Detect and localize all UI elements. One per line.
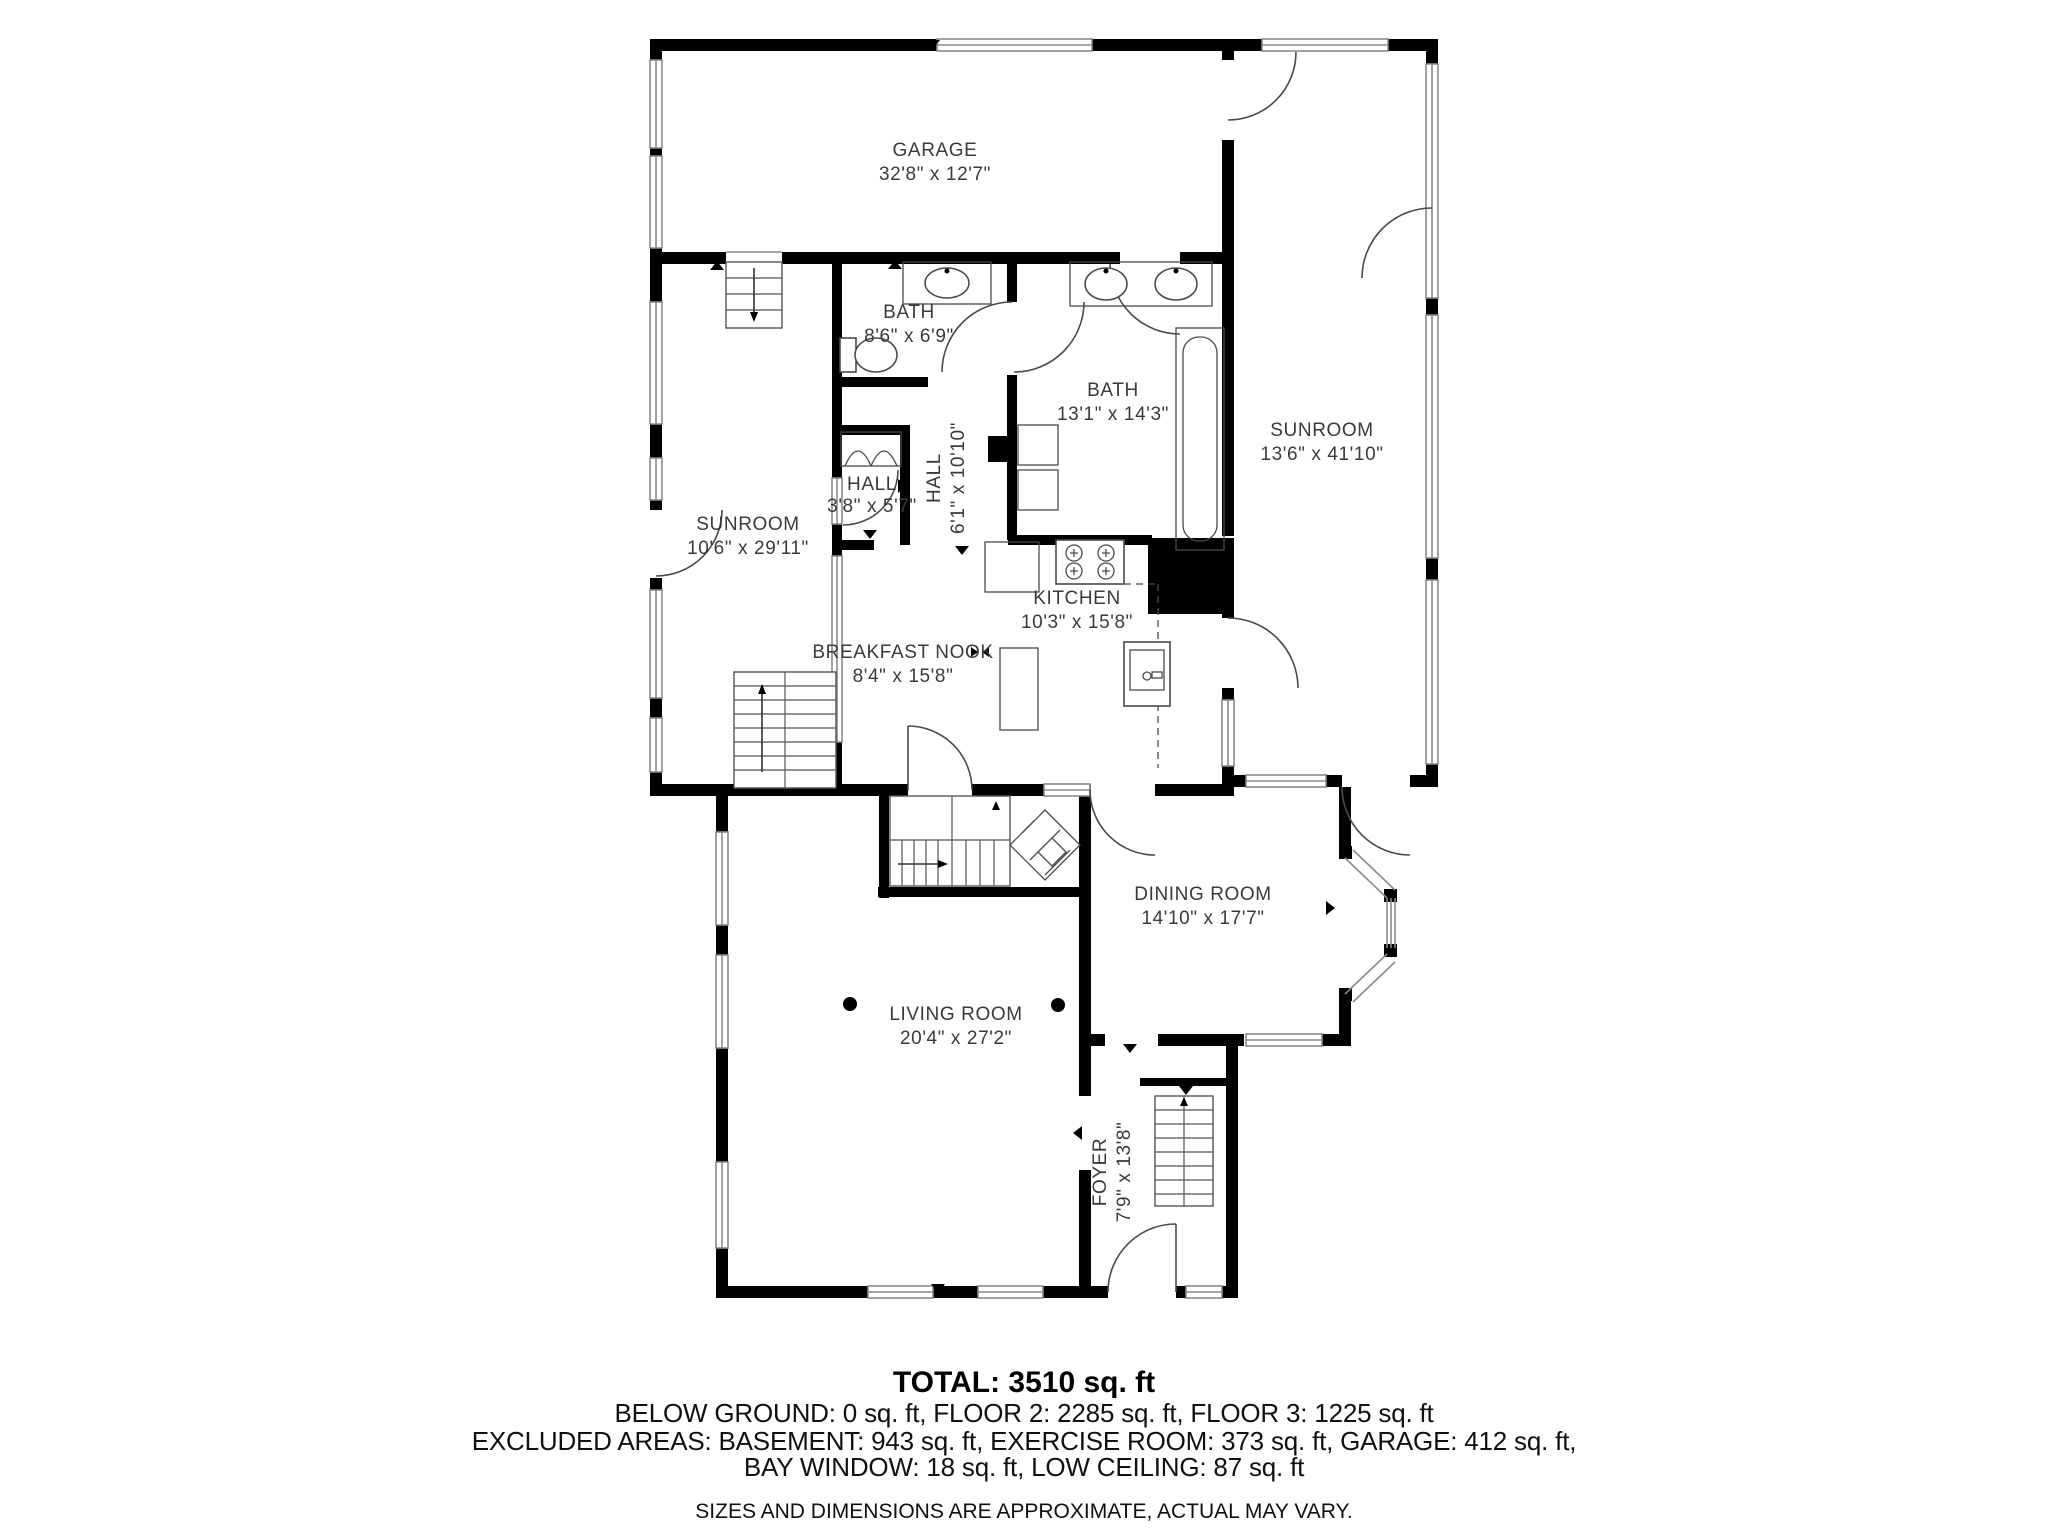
room-label-dining-room-name: DINING ROOM bbox=[1134, 884, 1272, 905]
direction-markers bbox=[710, 40, 1335, 1293]
room-label-bath-small-dims: 8'6" x 6'9" bbox=[864, 326, 954, 347]
room-label-breakfast-nook-name: BREAKFAST NOOK bbox=[812, 642, 993, 663]
stairs-garage bbox=[726, 262, 782, 328]
stairs-foyer bbox=[1155, 1096, 1213, 1206]
summary-disclaimer: SIZES AND DIMENSIONS ARE APPROXIMATE, AC… bbox=[695, 1500, 1352, 1523]
door-arc-sunroom-east bbox=[1362, 208, 1432, 278]
door-arc-front-entry bbox=[1108, 1224, 1176, 1292]
room-label-living-room-dims: 20'4" x 27'2" bbox=[900, 1028, 1012, 1049]
room-label-hall-long-dims: 6'1" x 10'10" bbox=[948, 422, 969, 534]
door-arc-breakfast-nook bbox=[908, 726, 972, 790]
door-arc-bath-large bbox=[1014, 302, 1084, 372]
column-dot bbox=[1051, 998, 1065, 1012]
room-label-hall-small-name: HALL bbox=[847, 474, 897, 495]
summary-excluded2: BAY WINDOW: 18 sq. ft, LOW CEILING: 87 s… bbox=[744, 1452, 1305, 1482]
stairs-sunroom-left bbox=[734, 672, 836, 788]
column-dot bbox=[843, 997, 857, 1011]
floor-plan-drawing: GARAGE 32'8" x 12'7" BATH 8'6" x 6'9" BA… bbox=[0, 0, 2048, 1536]
room-label-dining-room-dims: 14'10" x 17'7" bbox=[1141, 908, 1264, 929]
stairs-center bbox=[890, 796, 1010, 886]
stove-icon bbox=[1056, 540, 1124, 584]
kitchen-island-icon bbox=[1000, 648, 1038, 730]
room-label-bath-large-name: BATH bbox=[1087, 380, 1139, 401]
room-label-hall-small-dims: 3'8" x 5'7" bbox=[827, 496, 917, 517]
door-arc-dining-sunroom bbox=[1342, 787, 1410, 855]
windows bbox=[650, 39, 1438, 1298]
summary-block: TOTAL: 3510 sq. ft BELOW GROUND: 0 sq. f… bbox=[472, 1366, 1577, 1523]
sink-icon bbox=[903, 262, 991, 304]
room-label-sunroom-left-name: SUNROOM bbox=[696, 514, 799, 535]
double-sink-icon bbox=[1070, 262, 1212, 306]
kitchen-sink-icon bbox=[1124, 642, 1170, 706]
room-label-sunroom-left-dims: 10'6" x 29'11" bbox=[687, 538, 809, 559]
summary-floors: BELOW GROUND: 0 sq. ft, FLOOR 2: 2285 sq… bbox=[614, 1398, 1434, 1428]
room-label-garage-dims: 32'8" x 12'7" bbox=[879, 164, 991, 185]
room-label-kitchen-name: KITCHEN bbox=[1033, 588, 1121, 609]
room-label-bath-small-name: BATH bbox=[883, 302, 935, 323]
floor-plan-page: GARAGE 32'8" x 12'7" BATH 8'6" x 6'9" BA… bbox=[0, 0, 2048, 1536]
room-label-bath-large-dims: 13'1" x 14'3" bbox=[1057, 404, 1169, 425]
room-label-garage-name: GARAGE bbox=[893, 140, 978, 161]
room-label-foyer-dims: 7'9" x 13'8" bbox=[1114, 1122, 1135, 1223]
room-label-sunroom-right-name: SUNROOM bbox=[1270, 420, 1373, 441]
room-label-foyer-name: FOYER bbox=[1090, 1138, 1111, 1206]
room-label-hall-long-name: HALL bbox=[924, 453, 945, 503]
door-arc-sunroom-kitchen bbox=[1228, 618, 1298, 688]
bathtub-icon bbox=[1176, 328, 1224, 550]
closet-icon bbox=[1018, 425, 1058, 510]
room-label-kitchen-dims: 10'3" x 15'8" bbox=[1021, 612, 1133, 633]
closet-icon bbox=[841, 432, 901, 466]
door-arc-sunroom-top bbox=[1228, 52, 1296, 120]
room-label-breakfast-nook-dims: 8'4" x 15'8" bbox=[853, 666, 954, 687]
room-label-sunroom-right-dims: 13'6" x 41'10" bbox=[1260, 444, 1383, 465]
room-label-living-room-name: LIVING ROOM bbox=[889, 1004, 1022, 1025]
summary-total: TOTAL: 3510 sq. ft bbox=[893, 1366, 1155, 1399]
door-arc-dining-north bbox=[1090, 790, 1155, 855]
diamond-tile-icon bbox=[1010, 810, 1080, 880]
walls bbox=[650, 39, 1438, 1298]
